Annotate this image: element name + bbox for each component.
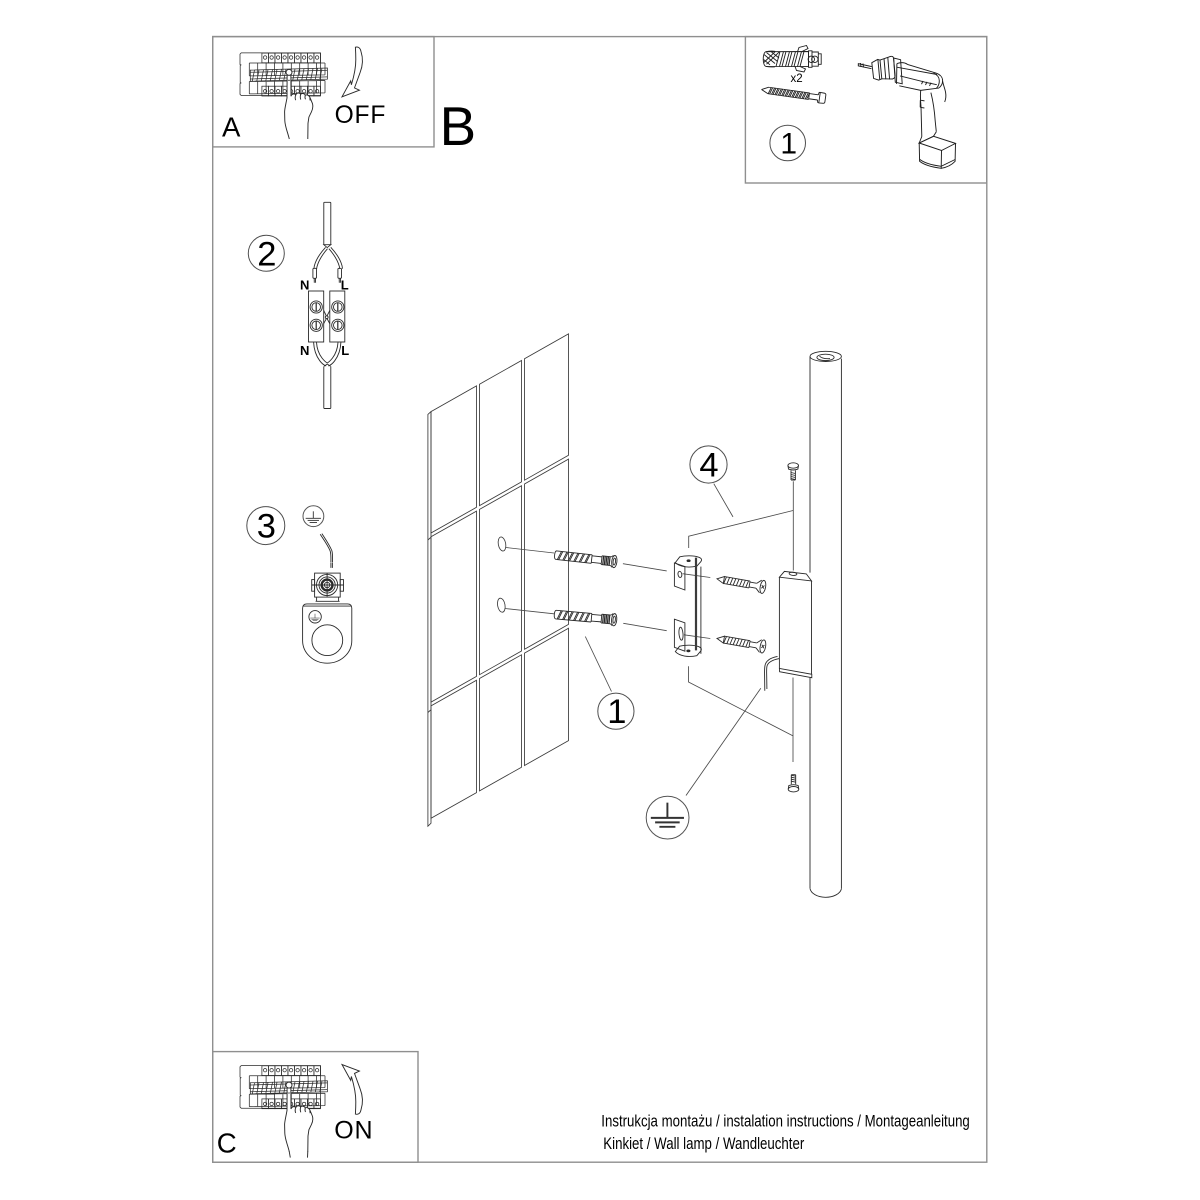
svg-text:1: 1 xyxy=(607,693,626,731)
svg-text:Kinkiet / Wall lamp / Wandleuc: Kinkiet / Wall lamp / Wandleuchter xyxy=(603,1135,804,1153)
svg-text:L: L xyxy=(341,278,349,293)
svg-text:x2: x2 xyxy=(791,73,803,85)
svg-text:4: 4 xyxy=(699,447,718,485)
svg-text:C: C xyxy=(217,1127,237,1158)
svg-text:A: A xyxy=(222,111,241,142)
svg-text:2: 2 xyxy=(257,235,276,273)
svg-text:Instrukcja montażu / instalati: Instrukcja montażu / instalation instruc… xyxy=(601,1113,970,1131)
svg-text:ON: ON xyxy=(334,1116,373,1144)
svg-text:1: 1 xyxy=(780,127,797,160)
svg-text:3: 3 xyxy=(257,508,276,546)
svg-text:N: N xyxy=(300,343,309,358)
svg-text:N: N xyxy=(300,278,309,293)
svg-text:L: L xyxy=(341,343,349,358)
svg-text:B: B xyxy=(440,95,476,157)
svg-text:OFF: OFF xyxy=(335,102,387,129)
